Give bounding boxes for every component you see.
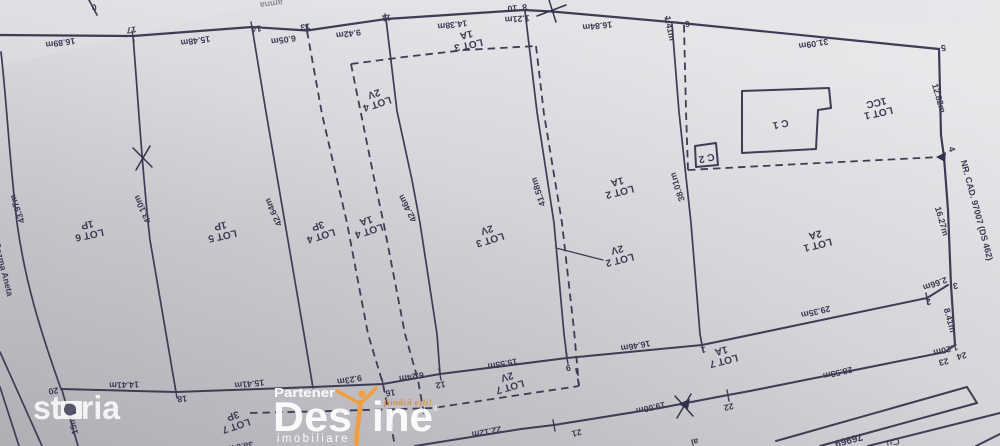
svg-text:17: 17 (126, 24, 137, 35)
svg-text:13: 13 (300, 21, 311, 32)
svg-text:14: 14 (251, 23, 262, 34)
svg-text:12: 12 (435, 379, 446, 391)
svg-text:®: ® (433, 404, 439, 413)
svg-text:8 10: 8 10 (507, 2, 528, 14)
svg-text:11: 11 (381, 12, 392, 23)
svg-text:fiindcă ești!: fiindcă ești! (384, 397, 432, 407)
svg-text:18: 18 (177, 394, 188, 405)
svg-text:imobiliare: imobiliare (277, 433, 350, 445)
svg-text:1.21m: 1.21m (504, 13, 530, 25)
